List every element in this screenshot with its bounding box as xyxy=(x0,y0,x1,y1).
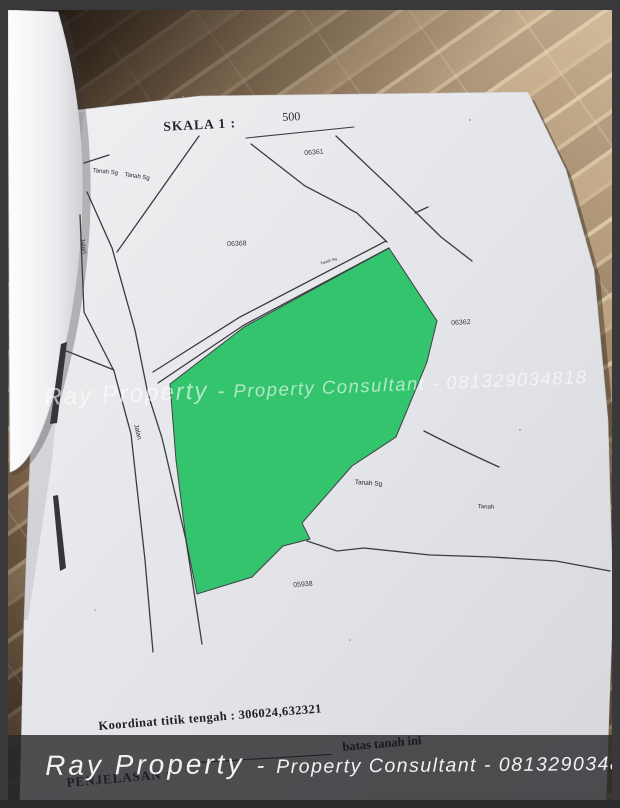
footer-brand: Ray Property xyxy=(45,750,245,780)
watermark-brand: Ray Property xyxy=(44,379,209,410)
footer-brand-row: Ray Property - Property Consultant - 081… xyxy=(45,747,620,780)
photo-of-land-plot-document: SKALA 1 : 500 06361 Tanah Sg Tanah Sg Ja… xyxy=(0,0,620,808)
scale-value: 500 xyxy=(282,110,301,123)
parcel-number-bottom: 05938 xyxy=(293,581,313,589)
footer-tagline: Property Consultant - 081329034818 xyxy=(276,755,620,778)
parcel-number-left: 06368 xyxy=(227,240,247,248)
watermark-separator: - xyxy=(217,381,225,402)
parcel-number-right: 06362 xyxy=(451,319,471,327)
area-label-tanah: Tanah xyxy=(478,504,495,511)
footer-separator: - xyxy=(256,754,264,777)
road-label-upper: Jalan xyxy=(78,238,87,254)
parcel-number-top: 06361 xyxy=(304,149,324,157)
